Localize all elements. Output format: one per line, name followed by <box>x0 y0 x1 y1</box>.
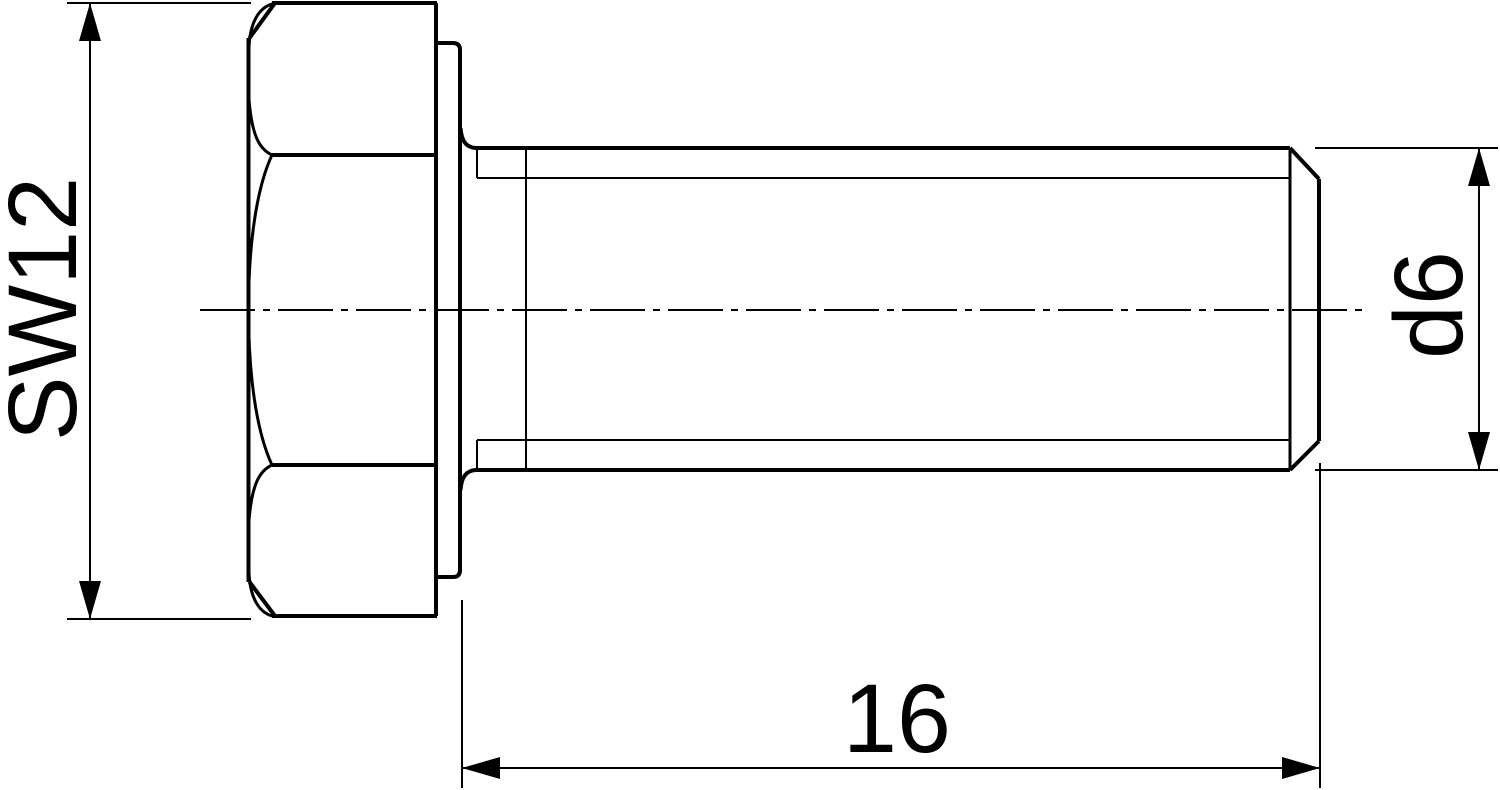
technical-drawing-page: SW12d616 <box>0 0 1500 790</box>
tip-chamfer-bottom <box>1290 441 1319 470</box>
length-label: 16 <box>843 664 951 773</box>
arrowheads-group <box>79 3 1490 779</box>
washer-face-corner-top <box>453 43 460 50</box>
dimension-lines-group <box>67 3 1498 788</box>
d6-arrowhead-up <box>1468 148 1490 186</box>
head-chamfer-arc-bottom-inner <box>249 465 272 520</box>
sw-arrowhead-down <box>79 581 101 619</box>
under-head-fillet-top <box>461 128 477 148</box>
dimension-labels-group: SW12d616 <box>0 177 1483 773</box>
under-head-fillet-bottom <box>461 470 477 490</box>
length-arrowhead-left <box>462 757 500 779</box>
tip-chamfer-top <box>1290 148 1319 179</box>
diameter-label: d6 <box>1374 251 1483 359</box>
d6-arrowhead-down <box>1468 432 1490 470</box>
washer-face-corner-bottom <box>453 570 460 577</box>
across-flats-label: SW12 <box>0 177 97 441</box>
sw-arrowhead-up <box>79 3 101 41</box>
hex-bolt-drawing: SW12d616 <box>0 0 1500 790</box>
length-arrowhead-right <box>1282 757 1320 779</box>
bolt-outline-group <box>200 3 1363 617</box>
head-chamfer-arc-top-inner <box>249 100 272 155</box>
